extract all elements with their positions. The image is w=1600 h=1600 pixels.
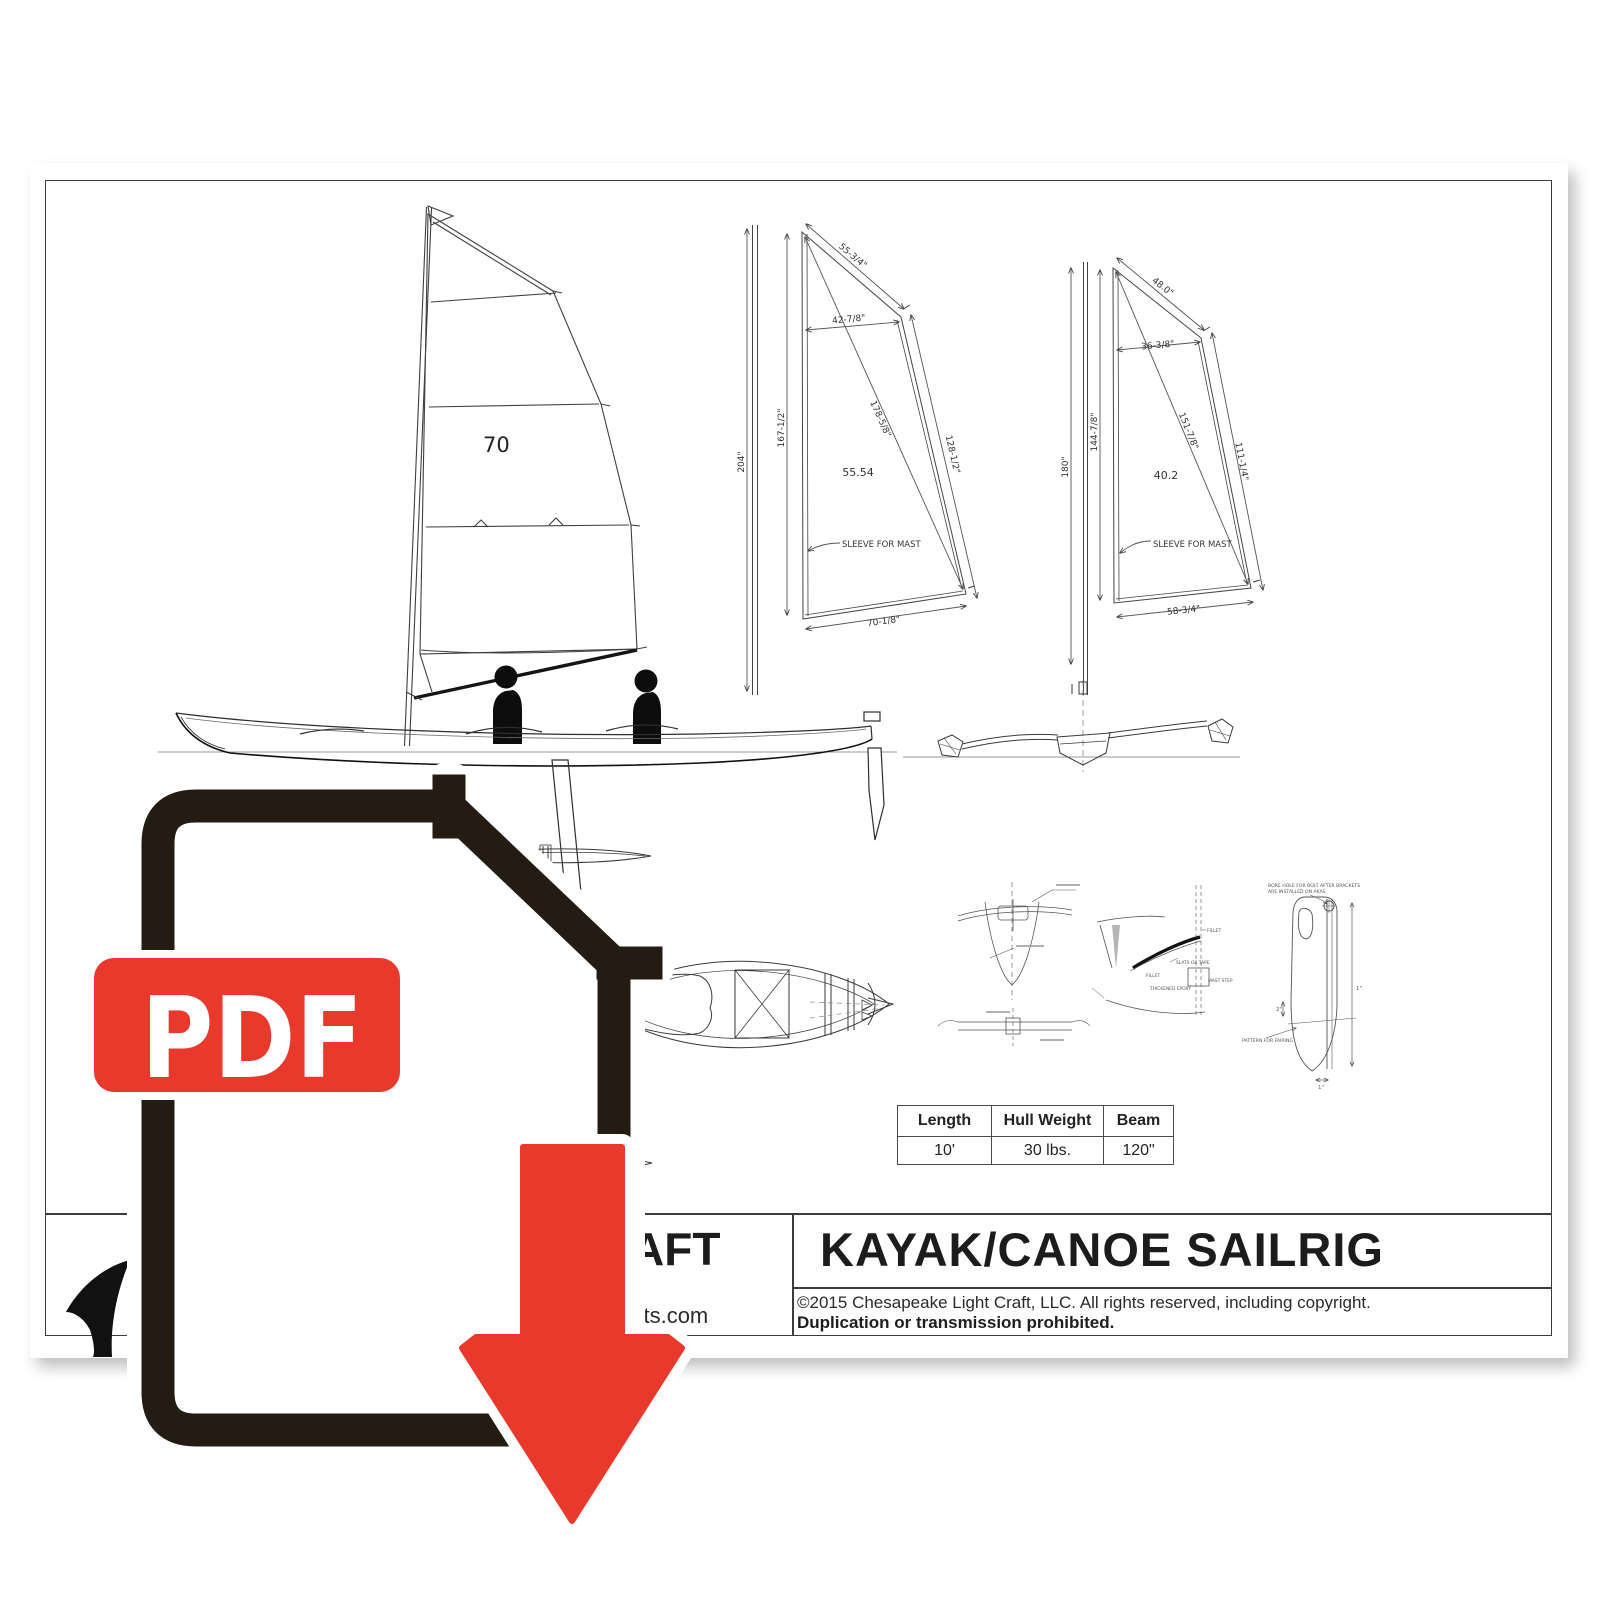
pdf-download-icon[interactable]: PDF <box>0 0 1600 1600</box>
pdf-plan-preview: 70 <box>0 0 1600 1600</box>
pdf-badge-label: PDF <box>141 974 363 1104</box>
